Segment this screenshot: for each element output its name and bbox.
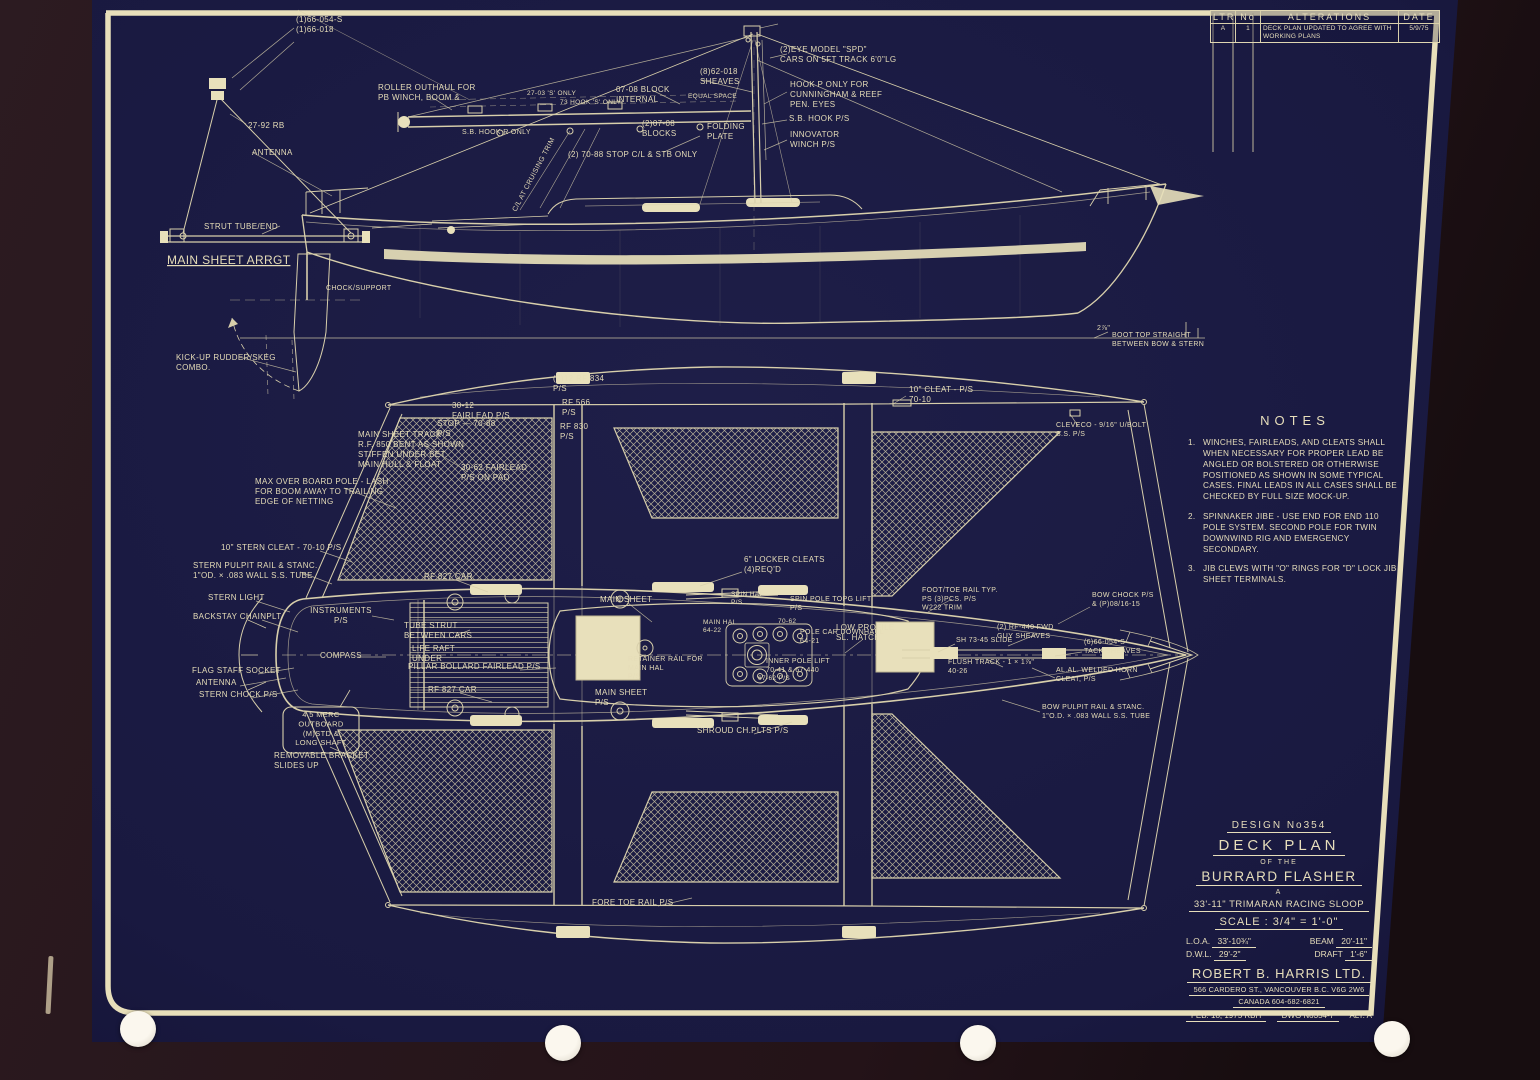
notes-title: NOTES [1188,412,1402,429]
drawing-label: BOOT TOP STRAIGHTBETWEEN BOW & STERN [1112,332,1204,348]
note-number: 1. [1188,438,1198,503]
beam-dim: BEAM 20'-11" [1310,936,1372,948]
loa-dim: L.O.A. 33'-10¾" [1186,936,1256,948]
drawing-label: EQUAL SPACE [688,93,737,100]
drawing-date: FEB. 18, 1975 RBH [1186,1011,1266,1022]
alteration-letter: ALT. A [1349,1011,1372,1022]
drawing-label: ANTENNA [252,148,293,157]
note-item: 2. SPINNAKER JIBE - USE END FOR END 110 … [1188,512,1402,555]
note-item: 3. JIB CLEWS WITH "O" RINGS FOR "D" LOCK… [1188,564,1402,586]
title-block-footer: FEB. 18, 1975 RBH DWG No354-7 ALT. A [1186,1011,1372,1022]
scale-note: SCALE : 3/4" = 1'-0" [1186,916,1372,930]
blueprint-scan: (1)66-054-S(1)66-01827-92 RBANTENNASTRUT… [0,0,1540,1080]
punch-hole [545,1025,581,1061]
alterations-col-date: DATE [1398,11,1439,23]
drawing-label: 70-62 [778,618,796,625]
of-the-label: OF THE [1186,859,1372,866]
drawing-label: STERN LIGHT [208,593,265,602]
drawing-label: STRUT TUBE/END [204,222,278,231]
drawing-label: (2) 70-88 STOP C/L & STB ONLY [568,150,698,159]
title-block: DESIGN No354 DECK PLAN OF THE BURRARD FL… [1186,820,1372,1022]
drawing-label: (8)62-018SHEAVES [700,67,740,86]
drawing-label: RF 827 CAR [424,572,473,581]
drawing-label: SHROUD CH.PLTS P/S [697,726,789,735]
alteration-no: 1 [1235,24,1260,42]
note-number: 2. [1188,512,1198,555]
note-item: 1. WINCHES, FAIRLEADS, AND CLEATS SHALL … [1188,438,1402,503]
drawing-label: FLAG STAFF SOCKET [192,666,281,675]
drawing-label: 27-92 RB [248,121,285,130]
design-number: DESIGN No354 [1186,820,1372,833]
note-text: SPINNAKER JIBE - USE END FOR END 110 POL… [1203,512,1402,555]
firm-address: 566 CARDERO ST., VANCOUVER B.C. V6G 2W6 [1186,985,1372,996]
firm-name: ROBERT B. HARRIS LTD. [1186,966,1372,983]
alteration-date: 5/9/75 [1398,24,1439,42]
drawing-label: INNOVATORWINCH P/S [790,130,839,149]
article-label: A [1186,889,1372,896]
drawing-label: 67-62 P/S [758,675,790,682]
drawing-label: BACKSTAY CHAINPLT [193,612,282,621]
alteration-text: DECK PLAN UPDATED TO AGREE WITH WORKING … [1260,24,1398,42]
alterations-table: LTR No ALTERATIONS DATE A 1 DECK PLAN UP… [1210,10,1440,43]
alterations-col-title: ALTERATIONS [1260,11,1398,23]
drawing-label: S.B. HOOK R ONLY [462,129,531,136]
note-number: 3. [1188,564,1198,586]
drawing-label: 2⅞" [1097,325,1110,332]
note-text: JIB CLEWS WITH "O" RINGS FOR "D" LOCK JI… [1203,564,1402,586]
draft-dim: DRAFT 1'-6" [1315,949,1373,961]
alterations-row: A 1 DECK PLAN UPDATED TO AGREE WITH WORK… [1211,23,1439,42]
alterations-header-row: LTR No ALTERATIONS DATE [1211,11,1439,23]
punch-hole [960,1025,996,1061]
drawing-label: MAIN SHEET ARRGT [167,253,291,267]
punch-hole [1374,1021,1410,1057]
drawing-label: FORE TOE RAIL P/S [592,898,673,907]
drawing-label: SH 73-45 SLIDE [956,637,1013,644]
alteration-ltr: A [1211,24,1235,42]
dims-row-1: L.O.A. 33'-10¾" BEAM 20'-11" [1186,936,1372,948]
boat-type: 33'-11" TRIMARAN RACING SLOOP [1186,899,1372,912]
alterations-col-no: No [1235,11,1260,23]
drawing-label: 10" STERN CLEAT - 70-10 P/S [221,543,341,552]
drawing-label: MAIN SHEET [600,595,652,604]
drawing-label: (2)07-08BLOCKS [642,119,677,138]
punch-hole [120,1011,156,1047]
drawing-label: 27-03 'S' ONLY [527,90,576,97]
drawing-label: PILLAR BOLLARD FAIRLEAD P/S [408,662,541,671]
alterations-col-ltr: LTR [1211,11,1235,23]
drawing-label: 73 HOOK 'S' ONLY [560,99,622,106]
dims-row-2: D.W.L. 29'-2" DRAFT 1'-6" [1186,949,1372,961]
drawing-label: STERN PULPIT RAIL & STANC.1"OD. × .083 W… [193,561,318,580]
firm-phone: CANADA 604-682-6821 [1186,997,1372,1008]
drawing-number: DWG No354-7 [1277,1011,1339,1022]
drawing-label: S.B. HOOK P/S [789,114,850,123]
boat-name: BURRARD FLASHER [1186,869,1372,886]
drawing-label: RF 827 CAR [428,685,477,694]
drawing-label: ANTENNA [196,678,237,687]
notes-block: NOTES 1. WINCHES, FAIRLEADS, AND CLEATS … [1188,412,1402,595]
note-text: WINCHES, FAIRLEADS, AND CLEATS SHALL WHE… [1203,438,1402,503]
drawing-label: COMPASS [320,651,362,660]
drawing-label: STERN CHOCK P/S [199,690,278,699]
dwl-dim: D.W.L. 29'-2" [1186,949,1246,961]
sheet-title: DECK PLAN [1186,837,1372,856]
drawing-label: CHOCK/SUPPORT [326,285,392,292]
drawing-label: 4.5 MERCOUTBOARD(M)STD &LONG SHAFT [295,710,346,747]
drawing-label: BOW PULPIT RAIL & STANC.1"O.D. × .083 WA… [1042,704,1150,720]
